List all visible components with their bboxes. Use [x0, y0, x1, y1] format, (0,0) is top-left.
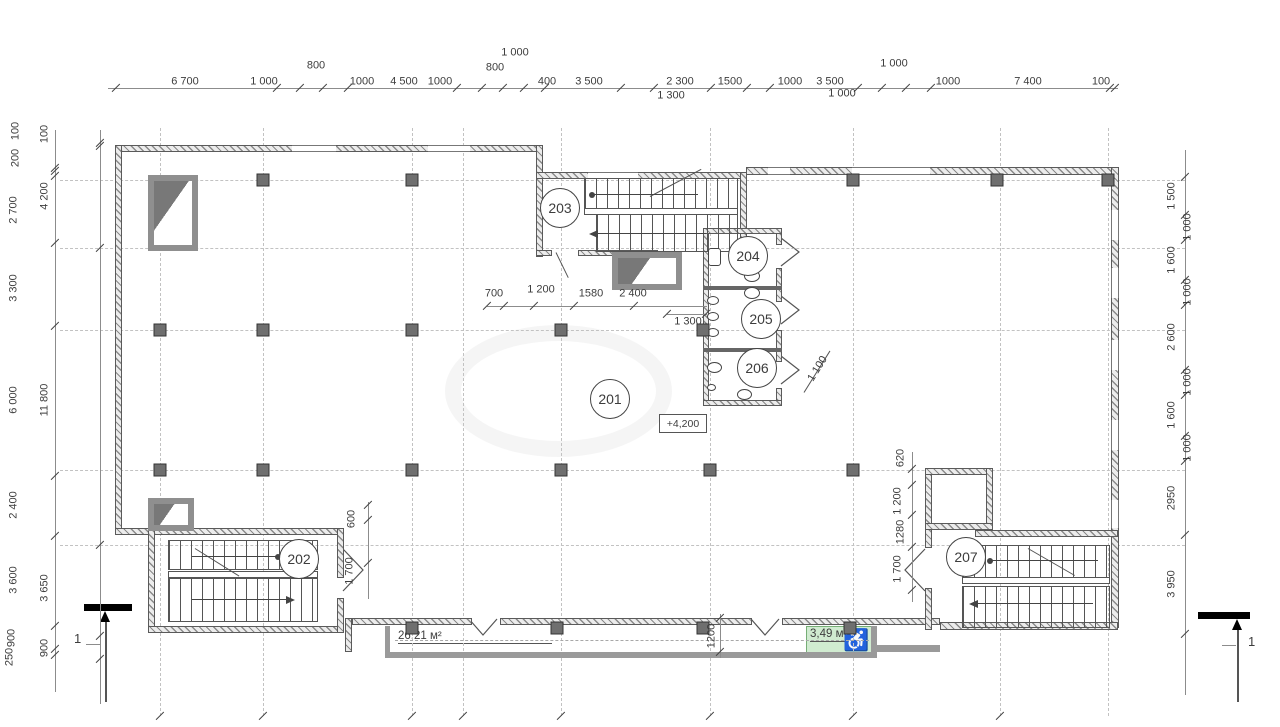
dimension-label: 1000 — [936, 77, 960, 88]
stair-direction-arrow — [990, 560, 1098, 561]
dimension-label: 1 700 — [345, 557, 356, 585]
room-number-bubble: 206 — [737, 348, 777, 388]
dimension-label: 400 — [538, 77, 556, 88]
dimension-label: 2950 — [1167, 486, 1178, 510]
door-swing-205 — [780, 295, 802, 325]
room-number-bubble: 201 — [590, 379, 630, 419]
wall-segment — [345, 618, 352, 652]
structural-column — [555, 464, 568, 477]
dimension-label: 1 000 — [501, 48, 529, 59]
dimension-label: 1 100 — [806, 354, 830, 383]
stair-direction-arrow — [598, 233, 706, 234]
dimension-label: 6 700 — [171, 77, 199, 88]
door-swing-206 — [780, 355, 802, 385]
stair-direction-arrow — [192, 599, 286, 600]
section-number-right: 1 — [1248, 634, 1255, 649]
structural-column — [847, 464, 860, 477]
wc-fixture — [707, 296, 719, 305]
room-number-bubble: 202 — [279, 539, 319, 579]
dimension-label: 1500 — [718, 77, 742, 88]
structural-column — [555, 324, 568, 337]
stair-direction-arrow — [592, 194, 698, 195]
wall-segment — [776, 330, 782, 362]
dimension-label: 1 200 — [527, 285, 555, 296]
window — [1111, 340, 1119, 370]
partition-wall — [703, 286, 782, 290]
grid-line-horizontal — [60, 470, 1185, 471]
dimension-line — [108, 88, 1118, 89]
stair-flight — [962, 586, 1110, 628]
dimension-label: 200 — [11, 149, 22, 167]
dimension-label: 4 200 — [40, 182, 51, 210]
dimension-label: 1 000 — [1183, 213, 1194, 241]
dimension-label: 2 300 — [666, 77, 694, 88]
structural-column — [406, 324, 419, 337]
wc-fixture — [744, 287, 760, 299]
floor-plan: +4,200 26,21 м² 3,49 м² ♿ 1 1 — [0, 0, 1280, 727]
section-cut-bar-left — [84, 604, 132, 611]
balcony-parapet — [877, 645, 940, 652]
dimension-label: 900 — [7, 629, 18, 647]
window — [852, 167, 930, 175]
balcony-parapet — [385, 652, 877, 658]
floor-plan-canvas: +4,200 26,21 м² 3,49 м² ♿ 1 1 — [0, 0, 1280, 727]
shaft — [148, 175, 198, 251]
stair-landing-rail — [584, 208, 738, 215]
section-number-left: 1 — [74, 631, 81, 646]
dimension-label: 1000 — [428, 77, 452, 88]
dimension-label: 1 300 — [657, 91, 685, 102]
window — [292, 145, 336, 152]
window — [428, 145, 470, 152]
structural-column — [154, 324, 167, 337]
section-stem-left — [105, 622, 107, 702]
dimension-label: 700 — [485, 289, 503, 300]
shaft-fill — [618, 258, 676, 284]
structural-column — [406, 622, 419, 635]
wall-segment — [975, 530, 1118, 537]
window — [1111, 420, 1119, 450]
structural-column — [257, 174, 270, 187]
dimension-label: 1280 — [896, 520, 907, 544]
balcony-centerline — [395, 640, 869, 641]
dimension-label: 7 400 — [1014, 77, 1042, 88]
dimension-label: 3 600 — [9, 566, 20, 594]
dimension-label: 1 700 — [893, 555, 904, 583]
wall-segment — [925, 523, 993, 530]
dimension-label: 2 400 — [9, 491, 20, 519]
dimension-label: 1 300 — [674, 317, 702, 328]
dimension-label: 4 500 — [390, 77, 418, 88]
dimension-label: 1 600 — [1167, 246, 1178, 274]
wall-segment — [782, 618, 940, 625]
window — [1111, 268, 1119, 298]
wall-segment — [115, 145, 122, 535]
section-stem-right — [1237, 630, 1239, 702]
dimension-label: 1 000 — [828, 89, 856, 100]
dimension-label: 3 950 — [1167, 570, 1178, 598]
shaft — [148, 498, 194, 531]
wall-segment — [925, 588, 932, 630]
dimension-label: 2 600 — [1167, 323, 1178, 351]
dimension-line — [912, 452, 913, 602]
watermark — [445, 325, 672, 457]
room-number-bubble: 203 — [540, 188, 580, 228]
dimension-label: 620 — [896, 449, 907, 467]
dimension-label: 3 300 — [9, 274, 20, 302]
dimension-label: 1000 — [350, 77, 374, 88]
dimension-label: 800 — [486, 63, 504, 74]
section-cut-bar-right — [1198, 612, 1250, 619]
wc-fixture — [707, 312, 719, 321]
dimension-label: 1 000 — [880, 59, 908, 70]
dimension-label: 1 500 — [1167, 182, 1178, 210]
wc-fixture — [707, 384, 716, 391]
structural-column — [1102, 174, 1115, 187]
section-arrow-right — [1232, 619, 1242, 630]
dimension-label: 6 000 — [9, 386, 20, 414]
room-number-bubble: 207 — [946, 537, 986, 577]
dimension-label: 1200 — [707, 624, 718, 648]
structural-column — [154, 464, 167, 477]
structural-column — [551, 622, 564, 635]
dimension-label: 100 — [40, 125, 51, 143]
dimension-label: 1000 — [778, 77, 802, 88]
wall-segment — [986, 468, 993, 530]
door-swing-balcony-2 — [750, 618, 780, 638]
dimension-label: 2 700 — [9, 196, 20, 224]
stair-direction-arrow — [192, 556, 278, 557]
elevation-mark: +4,200 — [659, 414, 707, 433]
wall-segment — [776, 268, 782, 302]
structural-column — [991, 174, 1004, 187]
grid-line-horizontal — [60, 330, 1185, 331]
dimension-label: 1 200 — [893, 487, 904, 515]
dimension-label: 100 — [1092, 77, 1110, 88]
dimension-label: 3 500 — [816, 77, 844, 88]
window — [1111, 210, 1119, 240]
dimension-label: 3 650 — [40, 574, 51, 602]
structural-column — [406, 464, 419, 477]
wall-segment — [703, 400, 782, 406]
window — [768, 167, 790, 175]
wall-segment — [746, 167, 1118, 175]
room-number-bubble: 204 — [728, 236, 768, 276]
stair-break-line — [556, 252, 569, 278]
dimension-line — [100, 130, 101, 704]
wall-segment — [148, 626, 344, 633]
structural-column — [257, 464, 270, 477]
dimension-line — [487, 306, 707, 307]
shaft-fill — [154, 504, 188, 525]
dimension-label: 1580 — [579, 289, 603, 300]
room-number-bubble: 205 — [741, 299, 781, 339]
dimension-label: 1 600 — [1167, 401, 1178, 429]
wall-segment — [925, 468, 993, 475]
dimension-label: 11 800 — [40, 384, 51, 417]
wc-fixture — [708, 248, 721, 266]
dimension-label: 1 000 — [1183, 368, 1194, 396]
wall-segment — [925, 468, 932, 548]
dimension-label: 250 — [5, 648, 16, 666]
section-leader-left — [86, 644, 100, 645]
structural-column — [847, 174, 860, 187]
wall-segment — [337, 598, 344, 633]
dimension-line — [55, 130, 56, 692]
dimension-label: 800 — [307, 61, 325, 72]
shaft-fill — [154, 181, 192, 245]
stair-landing-rail — [962, 577, 1110, 584]
dimension-label: 3 500 — [575, 77, 603, 88]
partition-wall — [703, 348, 782, 352]
stair-direction-arrow — [978, 603, 1093, 604]
wall-segment — [148, 528, 155, 633]
wc-fixture — [707, 362, 722, 373]
section-leader-right — [1222, 645, 1236, 646]
dimension-label: 600 — [347, 510, 358, 528]
dimension-label: 1 000 — [1183, 278, 1194, 306]
section-arrow-left — [100, 611, 110, 622]
dimension-label: 100 — [11, 122, 22, 140]
dimension-label: 2 400 — [619, 289, 647, 300]
structural-column — [704, 464, 717, 477]
wc-fixture — [737, 389, 752, 400]
wall-segment — [536, 250, 552, 256]
grid-line-vertical — [463, 128, 464, 716]
window — [1111, 500, 1119, 528]
shaft — [612, 252, 682, 290]
dimension-label: 900 — [40, 639, 51, 657]
door-swing-204 — [780, 237, 802, 267]
structural-column — [257, 324, 270, 337]
dimension-label: 1 000 — [250, 77, 278, 88]
structural-column — [406, 174, 419, 187]
dimension-label: 1 000 — [1183, 434, 1194, 462]
door-swing-balcony-1 — [468, 618, 498, 638]
structural-column — [844, 622, 857, 635]
